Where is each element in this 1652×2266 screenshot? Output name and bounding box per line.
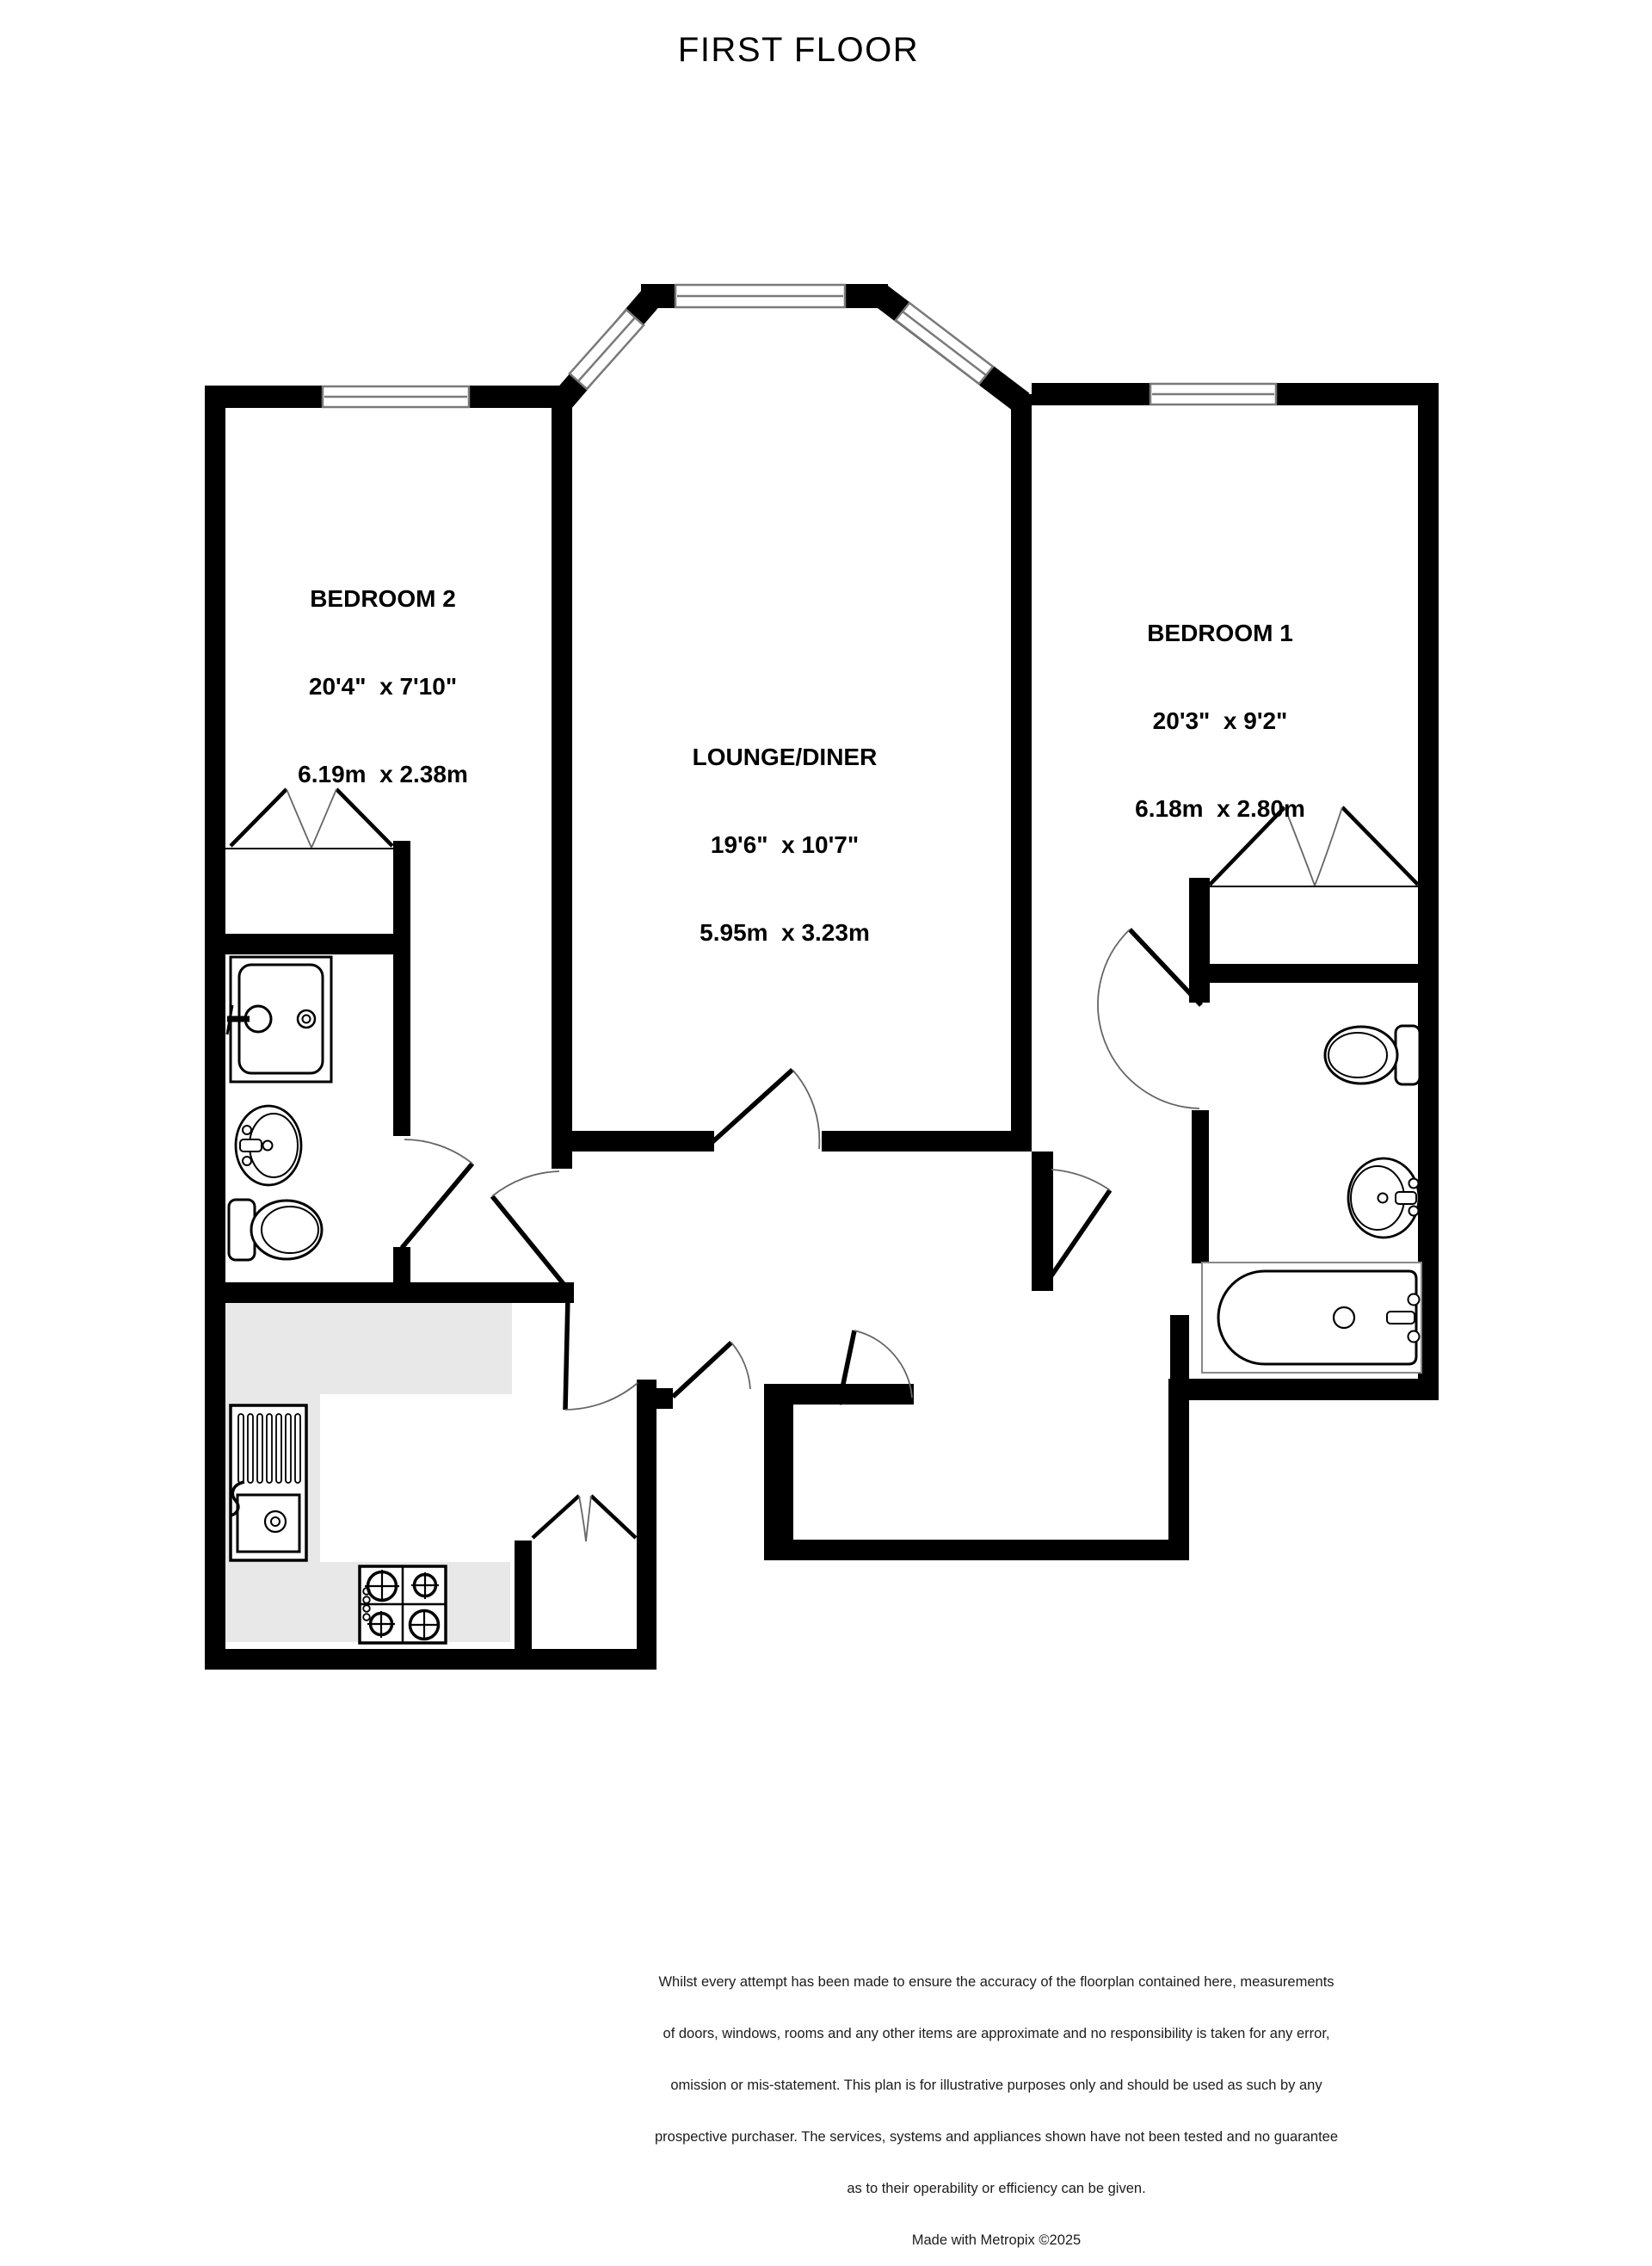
disclaimer-line: prospective purchaser. The services, sys… <box>523 2128 1470 2146</box>
wash-basin-left-icon <box>236 1106 301 1185</box>
window-bedroom-2-icon <box>323 386 469 407</box>
wall-segment <box>572 1131 714 1152</box>
room-name: LOUNGE/DINER <box>693 743 878 772</box>
wall-segment <box>469 386 564 408</box>
wall-segment <box>1276 383 1439 405</box>
disclaimer-line: Whilst every attempt has been made to en… <box>523 1973 1470 1991</box>
floorplan-drawing <box>0 0 1652 2035</box>
wall-segment <box>205 1282 574 1303</box>
wall-segment <box>1032 1152 1053 1291</box>
room-size-imperial: 20'4" x 7'10" <box>298 672 468 701</box>
floorplan-page: { "title": "FIRST FLOOR", "rooms": [ { "… <box>0 0 1652 2035</box>
room-label-lounge-diner: LOUNGE/DINER 19'6" x 10'7" 5.95m x 3.23m <box>693 684 878 977</box>
wall-segment <box>1168 1379 1189 1560</box>
disclaimer-line: as to their operability or efficiency ca… <box>523 2180 1470 2197</box>
door-bathroom-left <box>402 1139 472 1248</box>
wall-segment <box>1011 394 1032 1152</box>
bay-window-left-icon <box>570 310 644 389</box>
disclaimer-line: omission or mis-statement. This plan is … <box>523 2077 1470 2094</box>
walls <box>205 294 1439 1670</box>
wall-segment <box>656 1388 673 1409</box>
wall-segment <box>205 1649 656 1670</box>
wall-segment <box>793 1540 1189 1560</box>
wall-segment <box>764 1384 793 1560</box>
door-bathroom-right <box>1098 929 1201 1108</box>
wall-segment <box>225 934 410 954</box>
shower-tray-icon <box>227 957 331 1082</box>
room-size-metric: 5.95m x 3.23m <box>693 918 878 948</box>
disclaimer-line: of doors, windows, rooms and any other i… <box>523 2025 1470 2042</box>
room-label-bedroom-2: BEDROOM 2 20'4" x 7'10" 6.19m x 2.38m <box>298 526 468 818</box>
wall-segment <box>637 1380 656 1670</box>
room-name: BEDROOM 1 <box>1135 619 1305 648</box>
wall-segment <box>552 389 572 1169</box>
toilet-right-icon <box>1325 1026 1420 1084</box>
hob-icon <box>360 1566 446 1643</box>
room-label-bedroom-1: BEDROOM 1 20'3" x 9'2" 6.18m x 2.80m <box>1135 560 1305 853</box>
wall-segment <box>205 386 323 408</box>
wall-segment <box>822 1131 1011 1152</box>
wall-segment <box>793 1384 914 1405</box>
door-bedroom-2 <box>492 1171 564 1284</box>
toilet-left-icon <box>229 1200 322 1260</box>
wall-segment <box>393 1247 410 1282</box>
wall-segment <box>1189 878 1210 1003</box>
wall-segment <box>1210 964 1418 983</box>
room-size-metric: 6.18m x 2.80m <box>1135 794 1305 824</box>
door-kitchen <box>565 1296 638 1410</box>
door-lounge <box>712 1070 819 1149</box>
room-size-imperial: 19'6" x 10'7" <box>693 830 878 860</box>
bay-window-right-icon <box>896 303 993 384</box>
wall-segment <box>1418 383 1439 1400</box>
bath-icon <box>1202 1263 1421 1373</box>
room-size-metric: 6.19m x 2.38m <box>298 760 468 789</box>
window-bedroom-1-icon <box>1150 384 1276 404</box>
disclaimer: Whilst every attempt has been made to en… <box>523 1939 1470 2266</box>
wall-segment <box>1189 1379 1439 1400</box>
wall-segment <box>515 1541 532 1649</box>
credit-line: Made with Metropix ©2025 <box>523 2232 1470 2249</box>
door-hall <box>673 1343 750 1397</box>
room-size-imperial: 20'3" x 9'2" <box>1135 707 1305 736</box>
wall-segment <box>1192 1110 1209 1263</box>
wall-segment <box>205 386 225 1670</box>
kitchen-sink-icon <box>231 1405 306 1560</box>
room-name: BEDROOM 2 <box>298 584 468 614</box>
storage-cupboard-doors <box>533 1496 636 1541</box>
wall-segment <box>1032 383 1150 405</box>
wall-segment <box>393 841 410 1136</box>
wash-basin-right-icon <box>1348 1158 1419 1238</box>
wall-segment <box>1170 1315 1189 1380</box>
bay-window-top-icon <box>675 285 845 307</box>
